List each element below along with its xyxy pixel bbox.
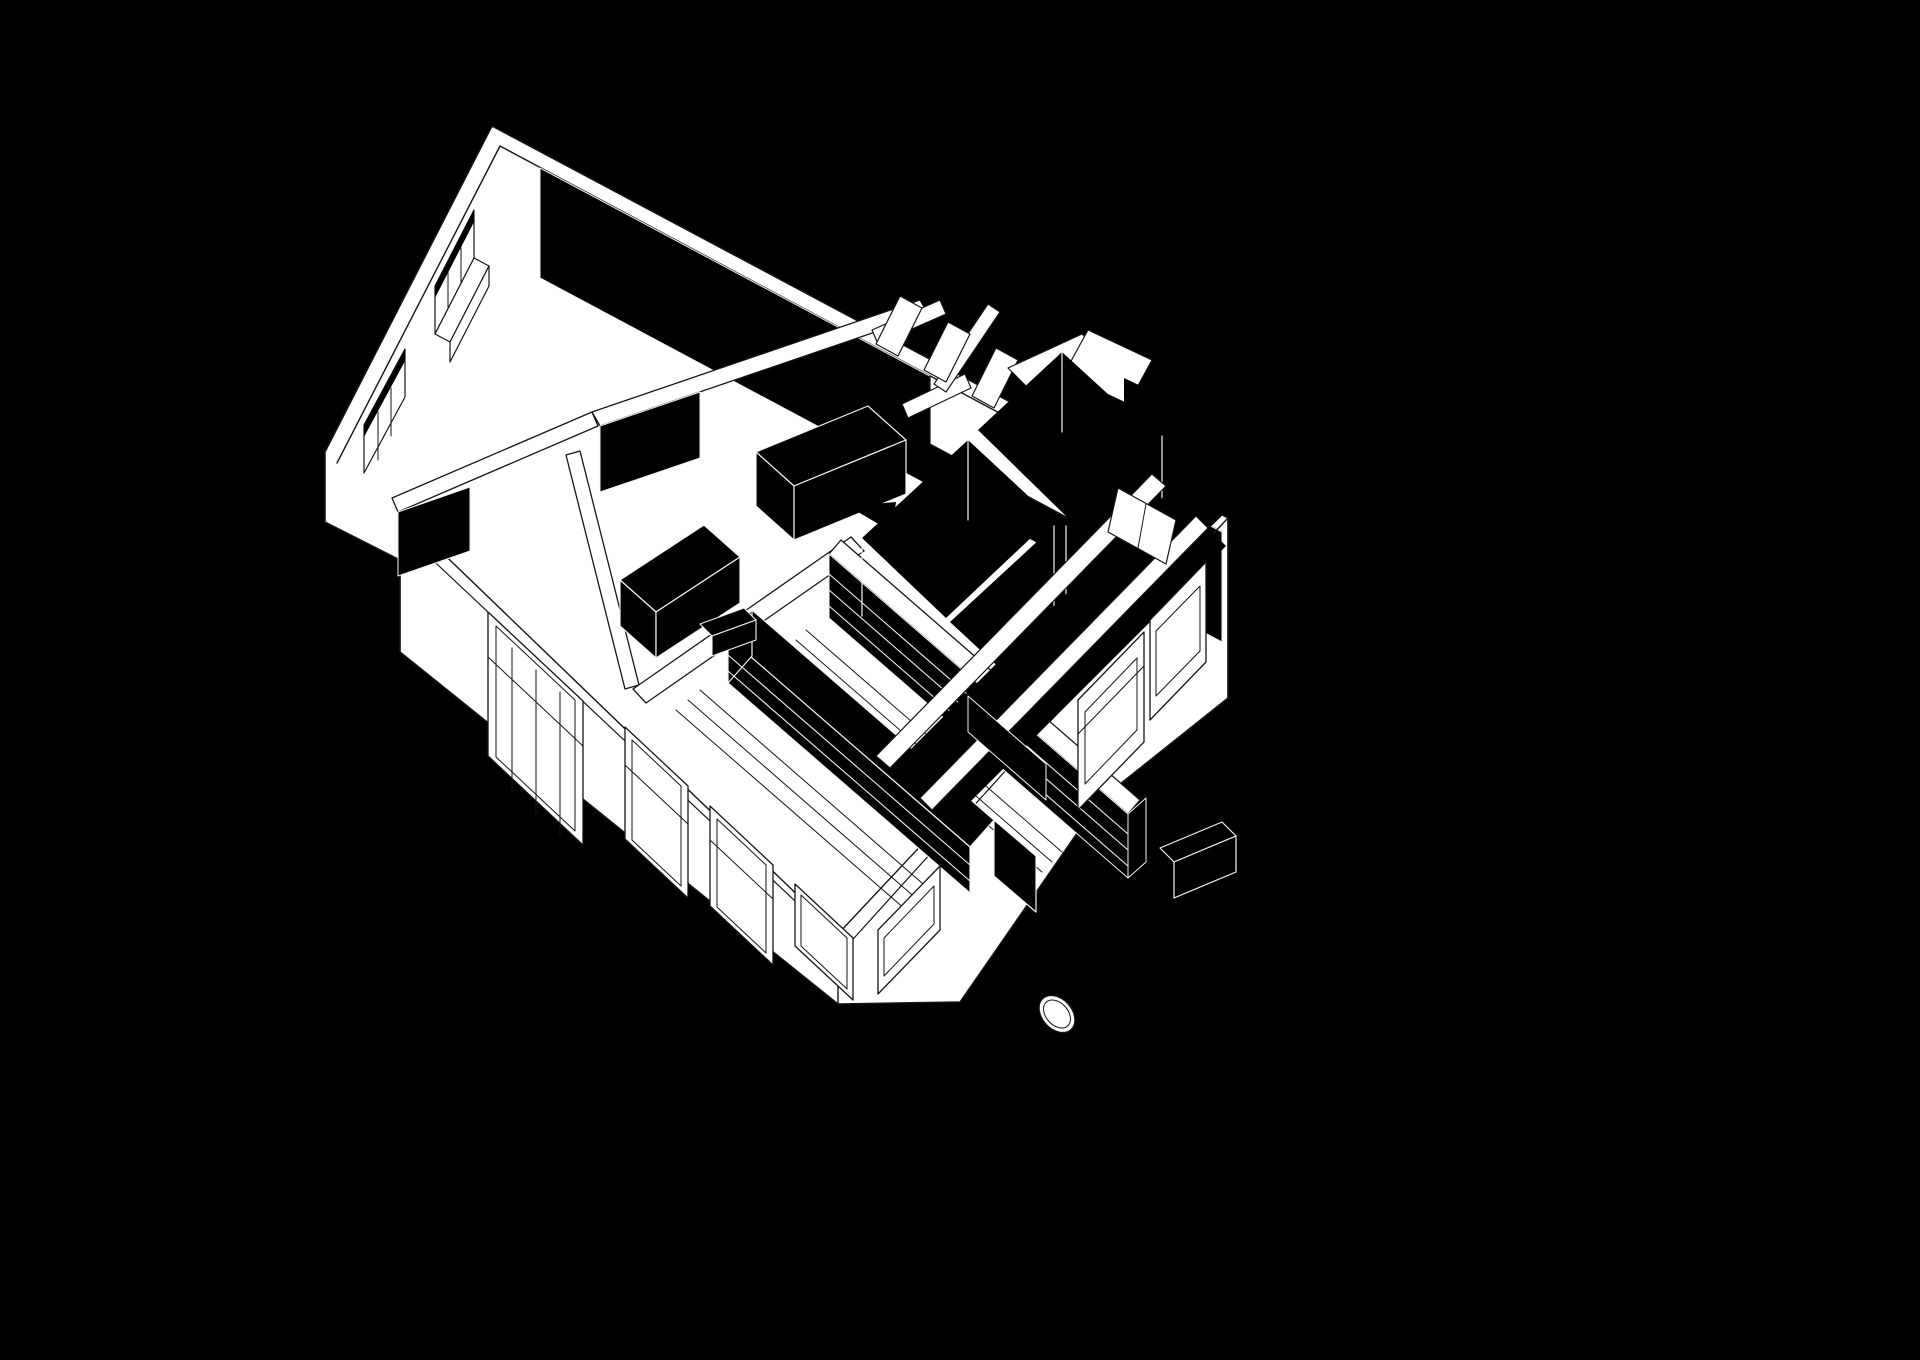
closet-stub-3 bbox=[972, 348, 1018, 408]
axonometric-building-drawing bbox=[0, 0, 1920, 1360]
axonometric-drawing-canvas bbox=[0, 0, 1920, 1360]
axonometric-floorplan-scene bbox=[0, 0, 1920, 1360]
